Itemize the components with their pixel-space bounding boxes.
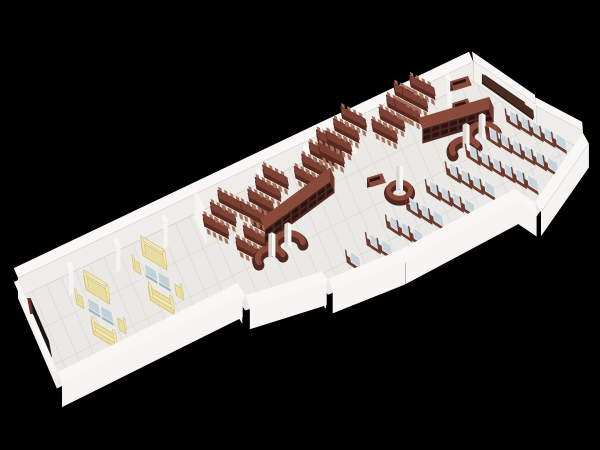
floorplan-render xyxy=(0,0,600,450)
column xyxy=(284,222,291,248)
column-side xyxy=(268,232,272,258)
wall-outer-face xyxy=(69,268,73,296)
wall-outer-face xyxy=(164,221,168,249)
wall-outer-face xyxy=(116,244,120,272)
column-side xyxy=(479,113,483,139)
column-side xyxy=(284,222,288,248)
column xyxy=(268,232,275,258)
column xyxy=(479,113,486,139)
column-face xyxy=(400,165,404,191)
column-face xyxy=(482,113,486,139)
column-face xyxy=(272,232,276,258)
column xyxy=(396,165,403,191)
render-stage xyxy=(0,0,600,450)
column-face xyxy=(288,222,292,248)
column-side xyxy=(396,165,400,191)
